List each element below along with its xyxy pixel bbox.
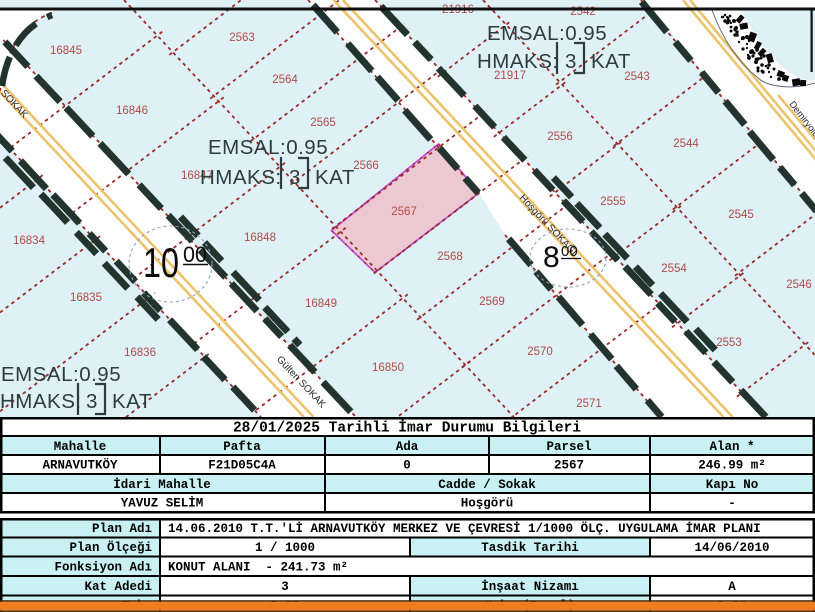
svg-text:2556: 2556: [547, 131, 573, 143]
svg-text:16834: 16834: [13, 235, 46, 247]
svg-text:3: 3: [281, 580, 289, 594]
svg-text:3: 3: [86, 390, 97, 413]
svg-text:2563: 2563: [229, 32, 255, 44]
svg-text:Kapı No: Kapı No: [706, 478, 759, 492]
svg-text:YAVUZ SELİM: YAVUZ SELİM: [121, 496, 204, 511]
svg-text:HMAKS:: HMAKS:: [477, 50, 559, 73]
svg-text:Plan Adı: Plan Adı: [92, 522, 152, 536]
svg-text:Fonksiyon Adı: Fonksiyon Adı: [54, 561, 152, 575]
svg-text:2544: 2544: [673, 138, 699, 150]
svg-text:Ada: Ada: [396, 440, 419, 454]
svg-text:16836: 16836: [124, 347, 156, 359]
svg-text:2568: 2568: [437, 251, 463, 263]
svg-text:2567: 2567: [391, 206, 417, 218]
svg-text:2553: 2553: [716, 337, 742, 349]
svg-text:2545: 2545: [728, 209, 754, 221]
svg-text:HMAKS:: HMAKS:: [0, 390, 82, 413]
svg-text:EMSAL:0.95: EMSAL:0.95: [487, 22, 607, 45]
svg-text:Tasdik Tarihi: Tasdik Tarihi: [481, 541, 579, 555]
svg-text:2564: 2564: [272, 74, 298, 86]
svg-text:Parsel: Parsel: [546, 440, 591, 454]
svg-text:ARNAVUTKÖY: ARNAVUTKÖY: [42, 457, 118, 473]
svg-text:Cadde / Sokak: Cadde / Sokak: [438, 478, 536, 492]
svg-text:2570: 2570: [527, 346, 553, 358]
svg-text:14.06.2010 T.T.'Lİ ARNAVUTKÖY: 14.06.2010 T.T.'Lİ ARNAVUTKÖY MERKEZ VE …: [168, 520, 761, 536]
svg-text:2546: 2546: [786, 279, 812, 291]
svg-text:Hoşgörü: Hoşgörü: [461, 497, 514, 511]
svg-text:16848: 16848: [244, 232, 276, 244]
svg-text:EMSAL:0.95: EMSAL:0.95: [1, 363, 121, 386]
svg-text:28/01/2025 Tarihli İmar Durumu: 28/01/2025 Tarihli İmar Durumu Bilgileri: [233, 420, 581, 437]
svg-text:246.99 m²: 246.99 m²: [698, 459, 766, 473]
svg-text:14/06/2010: 14/06/2010: [694, 541, 769, 555]
svg-text:Kat Adedi: Kat Adedi: [84, 580, 152, 594]
svg-text:EMSAL:0.95: EMSAL:0.95: [208, 136, 328, 159]
svg-text:2566: 2566: [353, 160, 379, 172]
svg-text:F21D05C4A: F21D05C4A: [208, 459, 276, 473]
svg-text:3: 3: [565, 50, 576, 73]
svg-text:A: A: [728, 580, 736, 594]
svg-text:2565: 2565: [310, 117, 336, 129]
svg-text:16845: 16845: [50, 45, 82, 57]
svg-text:2571: 2571: [576, 398, 602, 410]
svg-text:2567: 2567: [554, 459, 584, 473]
svg-text:2554: 2554: [661, 263, 687, 275]
svg-text:2569: 2569: [479, 296, 505, 308]
svg-text:İdari Mahalle: İdari Mahalle: [113, 477, 211, 492]
svg-text:10: 10: [143, 239, 179, 286]
svg-text:3: 3: [289, 166, 300, 189]
svg-text:İnşaat Nizamı: İnşaat Nizamı: [481, 579, 579, 594]
svg-text:16846: 16846: [116, 105, 148, 117]
svg-text:16850: 16850: [372, 362, 404, 374]
svg-text:KAT: KAT: [591, 50, 631, 73]
svg-text:16835: 16835: [70, 292, 102, 304]
svg-text:16849: 16849: [305, 298, 337, 310]
svg-text:8: 8: [543, 241, 560, 274]
svg-text:00: 00: [183, 242, 207, 267]
svg-text:1 / 1000: 1 / 1000: [255, 541, 315, 555]
svg-text:2555: 2555: [600, 196, 626, 208]
svg-text:Pafta: Pafta: [223, 440, 261, 454]
svg-text:Plan Ölçeği: Plan Ölçeği: [69, 539, 152, 555]
svg-text:HMAKS:: HMAKS:: [200, 166, 282, 189]
svg-text:KAT: KAT: [112, 390, 152, 413]
svg-text:KONUT ALANI - 241.73 m²: KONUT ALANI - 241.73 m²: [168, 561, 348, 575]
svg-text:Mahalle: Mahalle: [54, 440, 107, 454]
svg-text:KAT: KAT: [315, 166, 355, 189]
svg-text:-: -: [728, 497, 736, 511]
svg-text:0: 0: [403, 459, 411, 473]
svg-text:Alan *: Alan *: [709, 440, 754, 454]
